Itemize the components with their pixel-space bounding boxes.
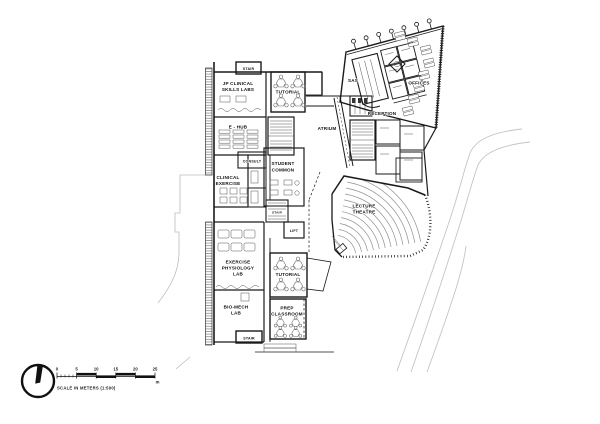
ehub-desks [219, 130, 258, 148]
label-exphys-2: PHYSIOLOGY [222, 266, 254, 271]
label-consult: CONSULT [243, 160, 262, 164]
site-boundary [158, 175, 213, 303]
scale-tick-20: 20 [133, 367, 138, 372]
label-sas: SAS [348, 78, 358, 83]
floor-plan: STAIR JP CLINICAL SKILLS LABS TUTORIAL E… [0, 0, 600, 424]
east-facade-hatch [436, 26, 443, 128]
label-exphys-1: EXERCISE [226, 260, 251, 265]
label-jp-clinical-2: SKILLS LABS [222, 87, 254, 92]
student-common-furniture [270, 180, 299, 195]
lecture-theatre [332, 158, 432, 257]
label-stair-bottom: STAIR [243, 337, 255, 341]
label-e-hub: E - HUB [229, 125, 248, 130]
facade-louvres-upper [206, 68, 213, 175]
facade-louvres-lower [206, 222, 213, 345]
label-reception: RECEPTION [368, 111, 397, 116]
architectural-sheet: STAIR JP CLINICAL SKILLS LABS TUTORIAL E… [0, 0, 600, 424]
scale-tick-10: 10 [94, 367, 99, 372]
scale-tick-5: 5 [75, 367, 78, 372]
label-stair-mid: STAIR [272, 211, 283, 215]
label-offices: OFFICES [408, 81, 429, 86]
scale-bar: 0 5 10 15 20 25 m SCALE IN METERS (1:500… [56, 367, 160, 391]
label-lift: LIFT [290, 229, 299, 233]
label-prep-2: CLASSROOM [271, 312, 303, 317]
label-jp-clinical-1: JP CLINICAL [223, 81, 253, 86]
label-biomech-1: BIO-MECH [224, 305, 249, 310]
scale-caption: SCALE IN METERS (1:500) [57, 386, 116, 391]
label-clinical-2: EXERCISE [216, 181, 241, 186]
label-student-2: COMMON [272, 168, 295, 173]
clinical-exercise-furniture [220, 188, 247, 203]
north-arrow [22, 365, 54, 397]
label-stair-top: STAIR [243, 67, 255, 71]
scale-tick-0: 0 [56, 367, 59, 372]
column-markers [352, 19, 432, 50]
biomech-equipment [241, 293, 249, 301]
label-student-1: STUDENT [271, 161, 294, 166]
prep-tables [274, 316, 302, 337]
open-office-desks [394, 31, 435, 116]
atrium-zone [306, 96, 353, 168]
label-prep-1: PREP [280, 306, 293, 311]
scale-tick-25: 25 [153, 367, 158, 372]
scale-tick-15: 15 [113, 367, 118, 372]
label-exphys-3: LAB [233, 272, 244, 277]
scale-unit: m [156, 380, 160, 385]
label-biomech-2: LAB [231, 311, 242, 316]
label-lecture-2: THEATRE [353, 210, 376, 215]
label-clinical-1: CLINICAL [216, 175, 239, 180]
label-tutorial-bottom: TUTORIAL [276, 272, 301, 277]
label-lecture-1: LECTURE [352, 204, 375, 209]
jp-clinical-furniture [218, 96, 261, 112]
label-tutorial-top: TUTORIAL [276, 90, 301, 95]
label-atrium: ATRIUM [318, 126, 337, 131]
